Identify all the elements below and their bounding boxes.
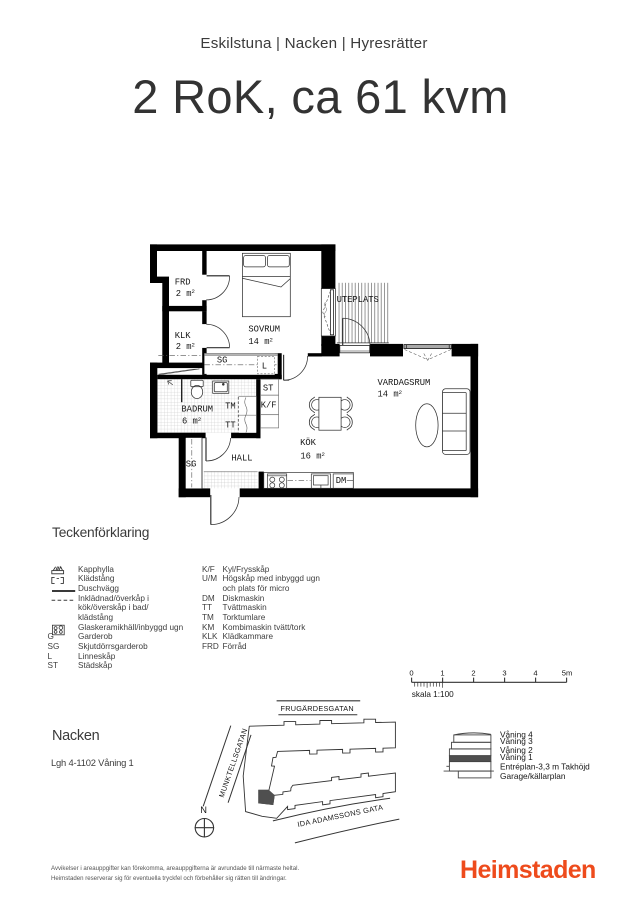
svg-text:Entréplan-3,3 m Takhöjd: Entréplan-3,3 m Takhöjd [500, 762, 590, 772]
svg-text:14 m2: 14 m2 [248, 336, 272, 347]
svg-text:L: L [262, 361, 267, 371]
svg-text:16 m2: 16 m2 [300, 451, 324, 462]
svg-text:UTEPLATS: UTEPLATS [337, 295, 379, 305]
svg-text:DM: DM [336, 476, 347, 486]
svg-text:4: 4 [533, 669, 537, 678]
svg-text:14 m2: 14 m2 [378, 389, 402, 400]
svg-text:KÖK: KÖK [300, 437, 317, 448]
svg-text:0: 0 [409, 669, 413, 678]
svg-text:FRD: FRD [175, 277, 191, 287]
svg-text:Våning 1: Våning 1 [500, 752, 533, 762]
svg-text:TM: TM [225, 401, 236, 411]
svg-text:Garage/källarplan: Garage/källarplan [500, 771, 566, 781]
svg-text:2 m2: 2 m2 [176, 341, 195, 352]
svg-text:FRUGÄRDESGATAN: FRUGÄRDESGATAN [281, 704, 354, 713]
svg-text:SG: SG [186, 460, 197, 470]
svg-text:2 m2: 2 m2 [176, 288, 195, 299]
svg-text:2: 2 [471, 669, 475, 678]
svg-text:N: N [200, 805, 207, 815]
svg-text:SOVRUM: SOVRUM [248, 324, 280, 334]
svg-text:5m: 5m [562, 669, 573, 678]
svg-text:K/F: K/F [261, 401, 277, 411]
svg-text:KLK: KLK [175, 331, 192, 341]
svg-text:BADRUM: BADRUM [181, 404, 213, 414]
svg-text:ST: ST [263, 383, 274, 393]
svg-text:SG: SG [217, 355, 228, 365]
svg-text:TT: TT [225, 420, 236, 430]
svg-text:skala 1:100: skala 1:100 [412, 690, 454, 699]
svg-text:HALL: HALL [231, 453, 252, 463]
svg-text:1: 1 [440, 669, 444, 678]
svg-text:VARDAGSRUM: VARDAGSRUM [378, 378, 431, 388]
svg-text:3: 3 [502, 669, 506, 678]
